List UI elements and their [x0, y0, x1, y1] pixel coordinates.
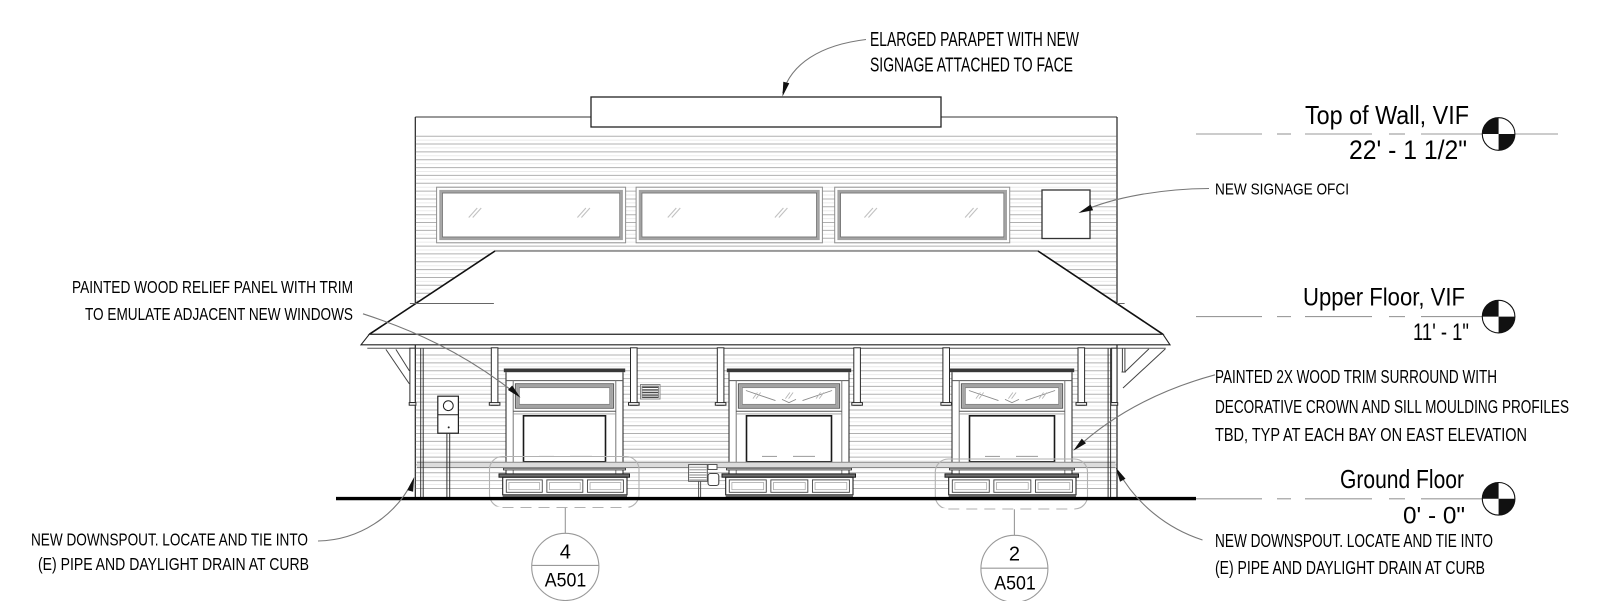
svg-text:NEW SIGNAGE OFCI: NEW SIGNAGE OFCI	[1215, 182, 1349, 199]
svg-text:TO EMULATE ADJACENT NEW WINDOW: TO EMULATE ADJACENT NEW WINDOWS	[85, 304, 353, 324]
svg-text:Top of Wall, VIF: Top of Wall, VIF	[1305, 100, 1469, 130]
svg-text:TBD, TYP AT EACH BAY ON EAST E: TBD, TYP AT EACH BAY ON EAST ELEVATION	[1215, 425, 1527, 445]
svg-text:PAINTED 2X WOOD TRIM SURROUND: PAINTED 2X WOOD TRIM SURROUND WITH	[1215, 367, 1497, 387]
svg-text:SIGNAGE ATTACHED TO FACE: SIGNAGE ATTACHED TO FACE	[870, 55, 1073, 77]
svg-text:NEW DOWNSPOUT. LOCATE AND TIE: NEW DOWNSPOUT. LOCATE AND TIE INTO	[1215, 531, 1493, 551]
svg-text:0' - 0": 0' - 0"	[1403, 503, 1465, 530]
svg-text:Upper Floor, VIF: Upper Floor, VIF	[1303, 284, 1465, 312]
svg-text:22' - 1 1/2": 22' - 1 1/2"	[1349, 135, 1467, 165]
svg-text:DECORATIVE CROWN AND SILL MOUL: DECORATIVE CROWN AND SILL MOULDING PROFI…	[1215, 397, 1569, 417]
svg-text:11' - 1": 11' - 1"	[1413, 319, 1469, 346]
svg-text:4: 4	[560, 542, 571, 564]
svg-text:NEW DOWNSPOUT. LOCATE AND TIE: NEW DOWNSPOUT. LOCATE AND TIE INTO	[31, 530, 308, 550]
svg-text:PAINTED WOOD RELIEF PANEL WITH: PAINTED WOOD RELIEF PANEL WITH TRIM	[72, 277, 353, 297]
svg-text:A501: A501	[994, 574, 1036, 595]
svg-text:A501: A501	[545, 571, 587, 592]
svg-text:(E) PIPE AND DAYLIGHT DRAIN AT: (E) PIPE AND DAYLIGHT DRAIN AT CURB	[1215, 558, 1485, 578]
svg-text:(E) PIPE AND DAYLIGHT DRAIN AT: (E) PIPE AND DAYLIGHT DRAIN AT CURB	[38, 554, 309, 574]
svg-text:ELARGED PARAPET WITH NEW: ELARGED PARAPET WITH NEW	[870, 29, 1079, 51]
svg-text:2: 2	[1009, 544, 1020, 566]
svg-text:Ground Floor: Ground Floor	[1340, 464, 1464, 494]
